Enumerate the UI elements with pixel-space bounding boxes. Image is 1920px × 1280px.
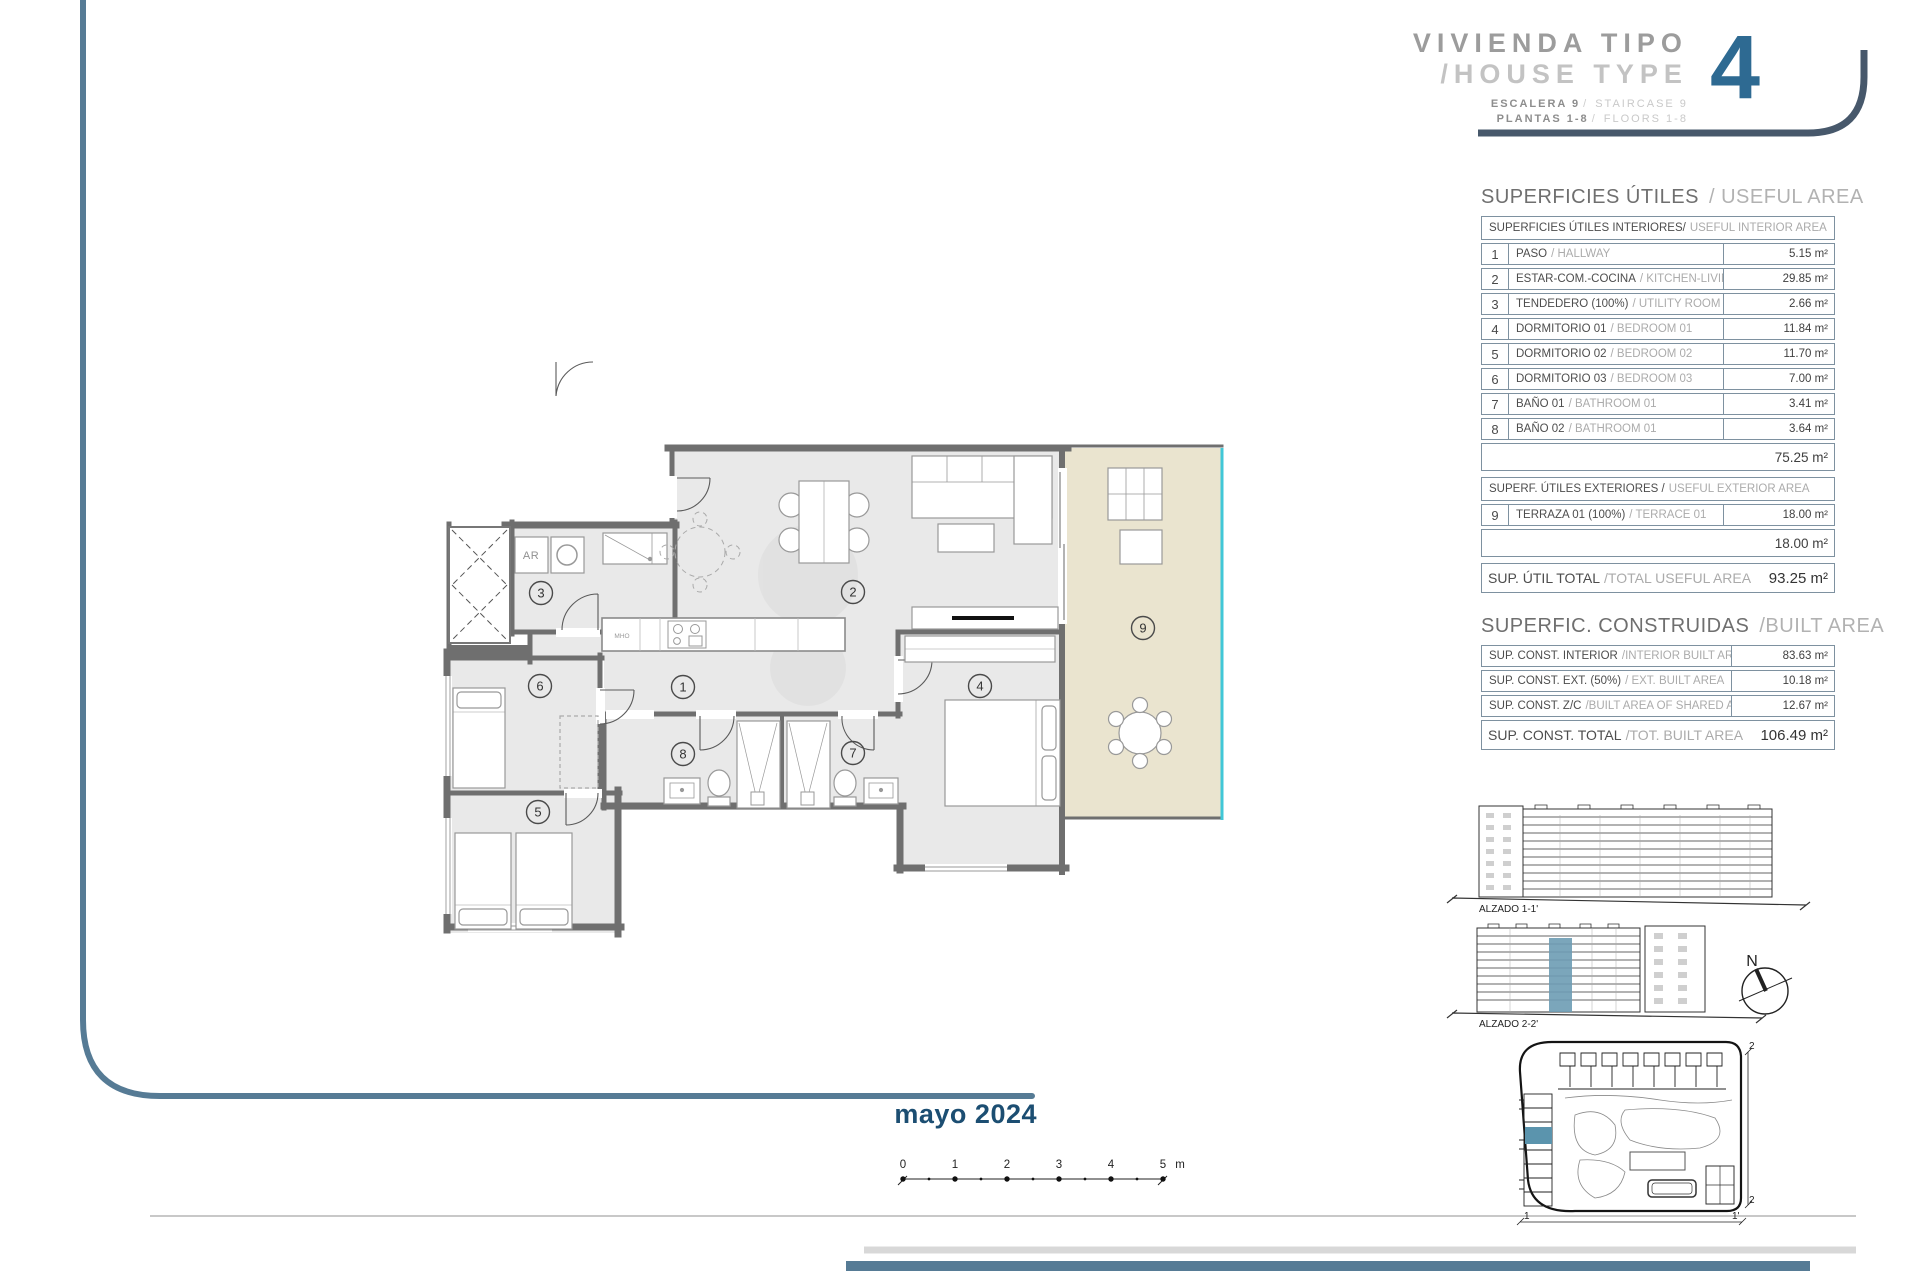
- elevation-1: [1447, 805, 1810, 910]
- site-highlight-unit: [1525, 1127, 1552, 1144]
- hob: [668, 621, 706, 648]
- scale-tick-label: 1: [952, 1159, 958, 1171]
- elevation-2: [1447, 924, 1766, 1023]
- toilet: [708, 770, 730, 796]
- floor-plan: AR MHO 1 2 3 4 5 6 7 8 9: [425, 345, 1255, 965]
- kitchen-counter: [602, 618, 845, 651]
- highlighted-stack: [1549, 938, 1572, 1012]
- room-number: 5: [534, 805, 541, 820]
- room-number: 9: [1139, 621, 1146, 636]
- pool: [1648, 1180, 1696, 1197]
- room-number: 2: [849, 585, 856, 600]
- title-block: VIVIENDA TIPO /HOUSE TYPE ESCALERA 9/STA…: [1360, 28, 1760, 127]
- elevator-shaft: [449, 527, 510, 643]
- house-type-number: 4: [1710, 32, 1760, 127]
- scale-bar: 0 1 2 3 4 5 m: [880, 1152, 1200, 1194]
- site-plan: 1 1' 2 2: [1517, 1041, 1755, 1225]
- area-tables: SUPERFICIES ÚTILES / USEFUL AREA SUPERFI…: [1481, 186, 1835, 753]
- floors-es: PLANTAS 1-8: [1497, 113, 1589, 125]
- laundry-tray: [603, 533, 667, 564]
- built-area-title: SUPERFIC. CONSTRUIDAS /BUILT AREA: [1481, 615, 1835, 638]
- elevation-1-label: ALZADO 1-1': [1479, 904, 1538, 915]
- interior-area-header: SUPERFICIES ÚTILES INTERIORES/ USEFUL IN…: [1481, 216, 1835, 240]
- scale-tick-label: 5: [1160, 1159, 1166, 1171]
- site-marker-left: 1: [1524, 1211, 1530, 1222]
- slash: /: [1580, 98, 1591, 110]
- floors-en: FLOORS 1-8: [1604, 113, 1688, 125]
- table-row: SUP. CONST. EXT. (50%)/ EXT. BUILT AREA1…: [1481, 670, 1835, 692]
- table-row: 4DORMITORIO 01/ BEDROOM 0111.84 m²: [1481, 318, 1835, 340]
- room-number: 1: [679, 680, 686, 695]
- north-label: N: [1746, 953, 1758, 970]
- elevation-2-label: ALZADO 2-2': [1479, 1019, 1538, 1030]
- table-row: SUP. CONST. INTERIOR/INTERIOR BUILT AREA…: [1481, 645, 1835, 667]
- title-en: /HOUSE TYPE: [1413, 59, 1688, 90]
- toilet: [834, 770, 856, 796]
- plan-date: mayo 2024: [815, 1099, 1037, 1130]
- scale-tick-label: 3: [1056, 1159, 1062, 1171]
- table-row: 9TERRAZA 01 (100%)/ TERRACE 0118.00 m²: [1481, 504, 1835, 526]
- useful-total-row: SUP. ÚTIL TOTAL/TOTAL USEFUL AREA 93.25 …: [1481, 563, 1835, 593]
- staircase-en: STAIRCASE 9: [1595, 98, 1688, 110]
- title-es: VIVIENDA TIPO: [1413, 28, 1688, 59]
- built-total-row: SUP. CONST. TOTAL/TOT. BUILT AREA 106.49…: [1481, 720, 1835, 750]
- tv: [952, 616, 1014, 620]
- site-marker-bottom: 2: [1749, 1195, 1755, 1206]
- exterior-subtotal: 18.00 m²: [1481, 529, 1835, 557]
- table-row: 1PASO/ HALLWAY5.15 m²: [1481, 243, 1835, 265]
- scale-unit: m: [1175, 1159, 1185, 1171]
- terrace-table: [1120, 530, 1162, 564]
- washer: [551, 537, 584, 573]
- staircase-es: ESCALERA 9: [1491, 98, 1580, 110]
- wall-band: [447, 645, 530, 658]
- sofa-chaise: [1014, 456, 1052, 544]
- slash: /: [1589, 113, 1600, 125]
- exterior-area-header: SUPERF. ÚTILES EXTERIORES / USEFUL EXTER…: [1481, 477, 1835, 501]
- table-row: 7BAÑO 01/ BATHROOM 013.41 m²: [1481, 393, 1835, 415]
- room-number: 8: [679, 747, 686, 762]
- site-marker-top: 2: [1749, 1041, 1755, 1052]
- table-row: 5DORMITORIO 02/ BEDROOM 0211.70 m²: [1481, 343, 1835, 365]
- coffee-table: [938, 524, 994, 552]
- table-row: SUP. CONST. Z/C/BUILT AREA OF SHARED ARE…: [1481, 695, 1835, 717]
- scale-tick-label: 2: [1004, 1159, 1010, 1171]
- table-row: 6DORMITORIO 03/ BEDROOM 037.00 m²: [1481, 368, 1835, 390]
- title-subtitle: ESCALERA 9/STAIRCASE 9 PLANTAS 1-8/FLOOR…: [1413, 97, 1688, 127]
- scale-tick-label: 0: [900, 1159, 906, 1171]
- table-row: 2ESTAR-COM.-COCINA/ KITCHEN-LIVING29.85 …: [1481, 268, 1835, 290]
- useful-area-title: SUPERFICIES ÚTILES / USEFUL AREA: [1481, 186, 1835, 209]
- terrace-round-table: [1119, 712, 1161, 754]
- room-number: 6: [536, 679, 543, 694]
- side-figures: ALZADO 1-1' ALZADO 2-2' N: [1440, 795, 1920, 1240]
- room-number: 7: [849, 746, 856, 761]
- closet-label: AR: [523, 550, 539, 562]
- kitchen-label: MHO: [614, 633, 629, 640]
- scale-tick-label: 4: [1108, 1159, 1115, 1171]
- site-marker-right: 1': [1732, 1211, 1740, 1222]
- room-number: 4: [976, 679, 983, 694]
- room-number: 3: [537, 586, 544, 601]
- table-row: 8BAÑO 02/ BATHROOM 013.64 m²: [1481, 418, 1835, 440]
- table-row: 3TENDEDERO (100%)/ UTILITY ROOM2.66 m²: [1481, 293, 1835, 315]
- north-arrow: N: [1739, 953, 1792, 1014]
- interior-subtotal: 75.25 m²: [1481, 443, 1835, 471]
